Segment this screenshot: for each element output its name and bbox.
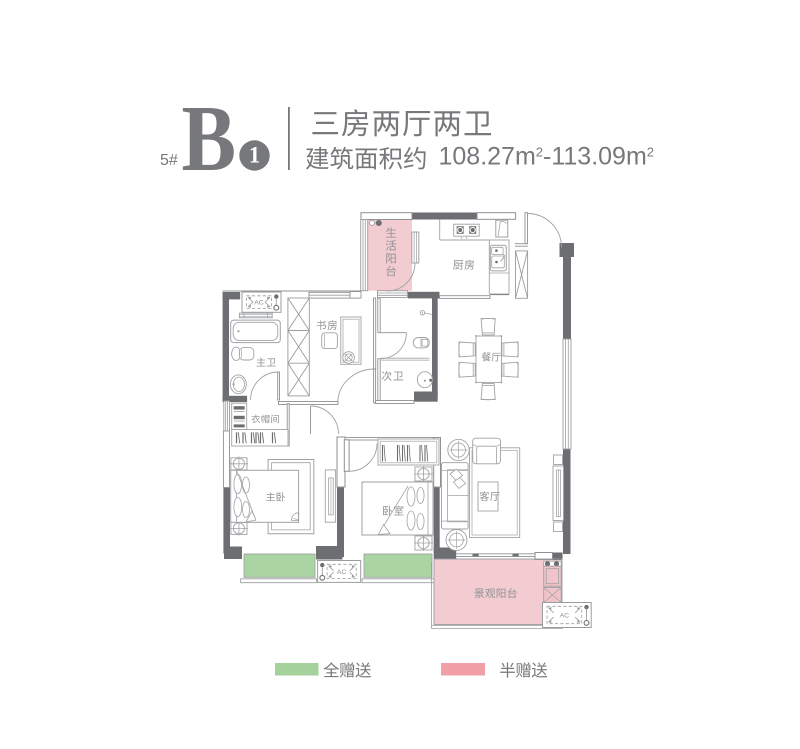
svg-text:AC: AC [560,612,570,619]
svg-text:AC: AC [337,569,347,576]
svg-text:AC: AC [254,300,264,307]
svg-text:B: B [182,87,237,192]
svg-text:108.27m2-113.09m2: 108.27m2-113.09m2 [439,143,655,171]
svg-text:1: 1 [249,143,261,168]
svg-text:5#: 5# [160,152,178,169]
